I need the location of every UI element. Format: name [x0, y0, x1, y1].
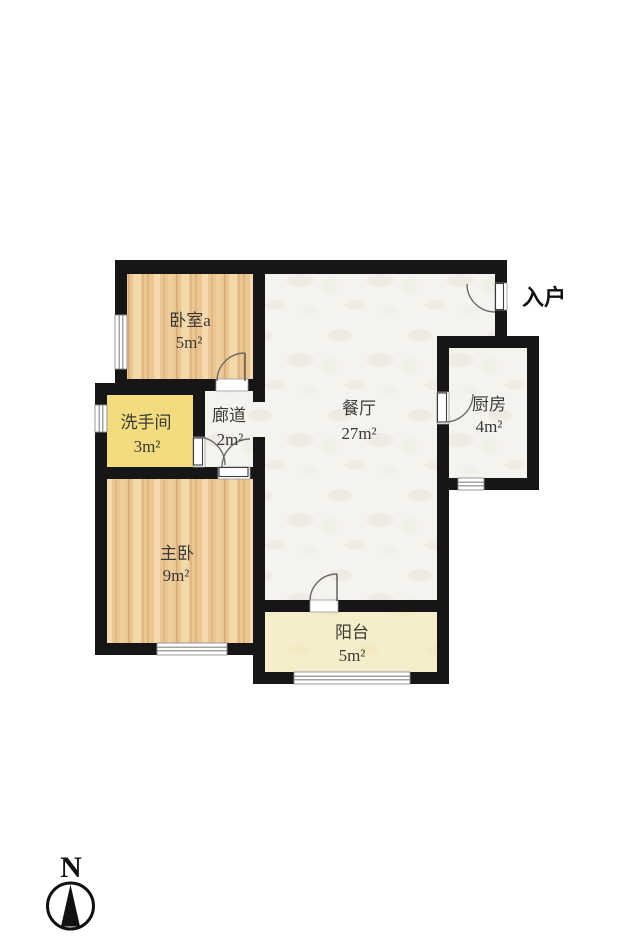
- balcony-label: 阳台: [335, 623, 369, 642]
- wall-segment: [410, 672, 449, 684]
- wall-segment: [437, 490, 449, 600]
- wall-segment: [253, 672, 294, 684]
- wall-segment: [95, 395, 107, 405]
- wall-segment: [527, 348, 539, 478]
- corridor-floor: [205, 391, 253, 467]
- dining-area: 27m²: [341, 424, 376, 443]
- wall-segment: [115, 274, 127, 315]
- wall-segment: [253, 600, 310, 612]
- wall-segment: [253, 274, 265, 402]
- bathroom-label: 洗手间: [121, 413, 172, 432]
- wall-segment: [253, 479, 265, 684]
- corridor-area: 2m²: [217, 430, 244, 449]
- kitchen-label: 厨房: [472, 395, 506, 414]
- wall-segment: [95, 479, 107, 655]
- bedroom-a-window: [115, 315, 127, 369]
- wall-segment: [495, 310, 507, 336]
- dining-label: 餐厅: [342, 399, 376, 418]
- balcony-area: 5m²: [339, 646, 366, 665]
- floor-plan-canvas: 卧室a 5m² 洗手间 3m² 廊道 2m² 餐厅 27m² 厨房 4m² 主卧…: [0, 0, 631, 943]
- entrance-label: 入户: [522, 285, 566, 310]
- master-bedroom-window: [157, 643, 227, 655]
- master-bedroom-area: 9m²: [163, 566, 190, 585]
- bathroom-area: 3m²: [134, 437, 161, 456]
- wall-segment: [437, 348, 449, 392]
- wall-segment: [250, 467, 265, 479]
- kitchen-window: [458, 478, 484, 490]
- bedroom-a-label: 卧室a: [169, 311, 211, 330]
- corridor-dining-opening: [253, 402, 265, 437]
- wall-segment: [484, 478, 539, 490]
- wall-segment: [193, 395, 205, 437]
- wall-segment: [95, 467, 218, 479]
- wall-segment: [115, 379, 216, 391]
- bedroom-a-area: 5m²: [176, 333, 203, 352]
- wall-segment: [338, 600, 449, 612]
- wall-segment: [115, 260, 507, 274]
- wall-segment: [437, 336, 539, 348]
- wall-segment: [437, 600, 449, 684]
- floor-plan-page: 卧室a 5m² 洗手间 3m² 廊道 2m² 餐厅 27m² 厨房 4m² 主卧…: [0, 0, 631, 943]
- compass-north-label: N: [60, 851, 82, 884]
- bathroom-window: [95, 405, 107, 432]
- balcony-window: [294, 672, 410, 684]
- wall-segment: [95, 643, 157, 655]
- wall-segment: [437, 424, 449, 478]
- wall-segment: [495, 274, 507, 283]
- wall-segment: [437, 478, 458, 490]
- kitchen-area: 4m²: [476, 417, 503, 436]
- compass: N: [48, 851, 94, 929]
- master-bedroom-label: 主卧: [160, 544, 194, 563]
- wall-segment: [95, 432, 107, 467]
- corridor-label: 廊道: [212, 406, 246, 425]
